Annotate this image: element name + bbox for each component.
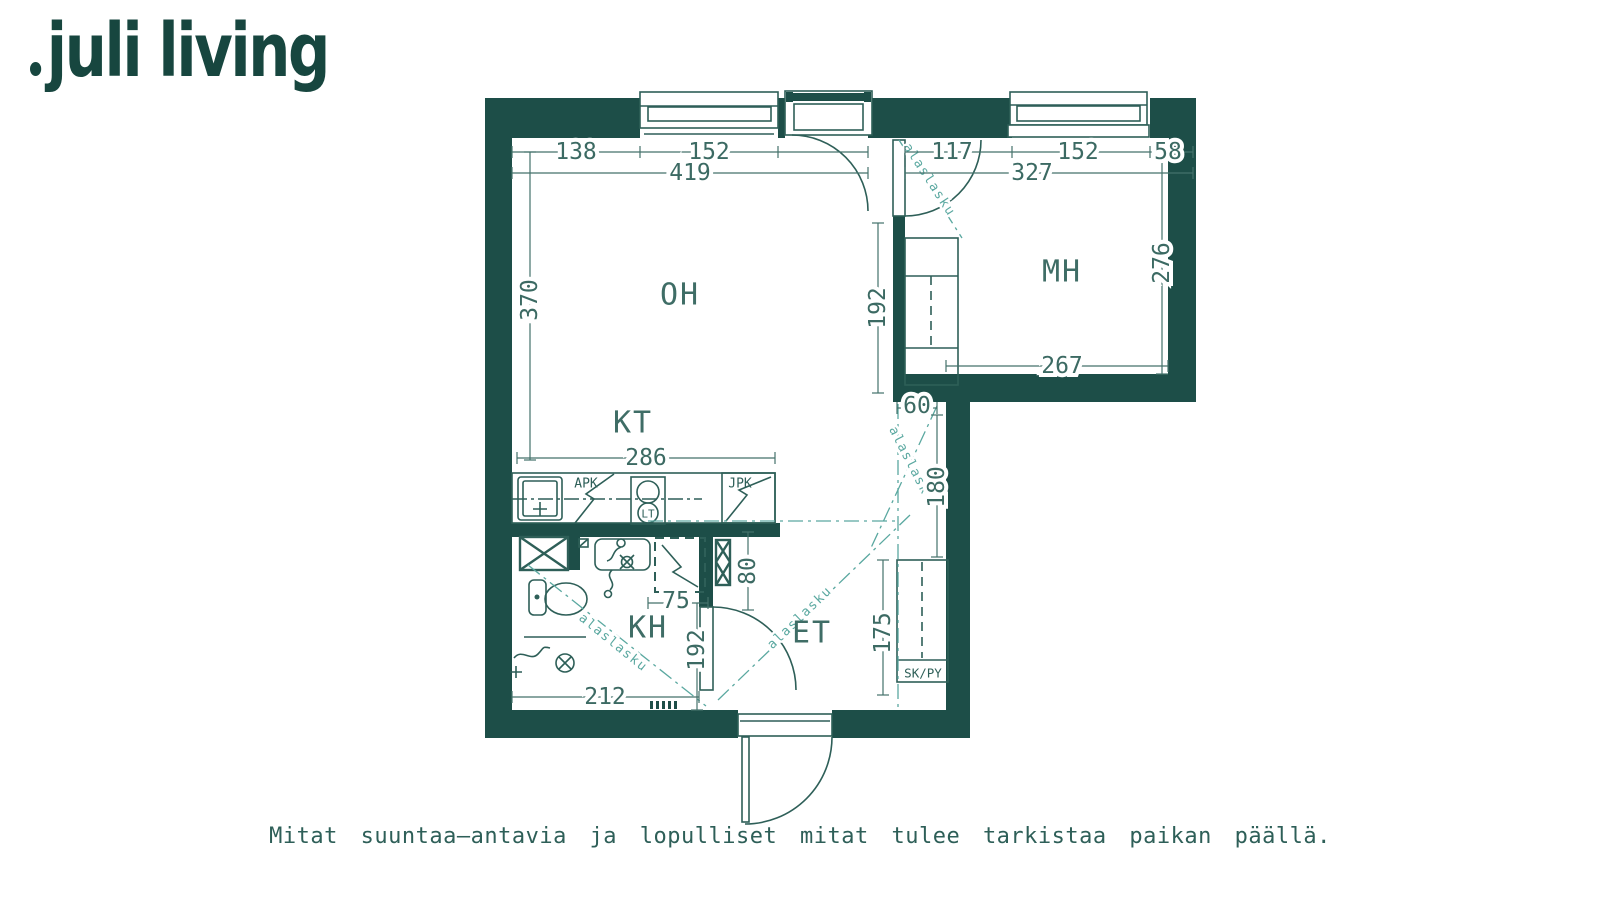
- dim-oh-opening: 192: [865, 287, 891, 329]
- dim-nook-w: 60: [903, 393, 931, 419]
- floor-plan-drawing: APK JPK LT: [0, 0, 1600, 900]
- walls: [485, 98, 1196, 738]
- dim-mh-bottom: 267: [1041, 353, 1083, 379]
- floor-plan-page: juli living: [0, 0, 1600, 900]
- dim-nook-h: 180: [924, 466, 950, 508]
- toilet-icon: [529, 580, 587, 615]
- dim-et-cab: 80: [735, 557, 761, 585]
- room-label-bedroom: MH: [1042, 255, 1082, 290]
- bedroom-wardrobe: [905, 238, 958, 385]
- hatch-square-icon: [579, 539, 588, 547]
- duct-shaft-icon: [520, 537, 568, 570]
- dim-oh-left: 370: [517, 279, 543, 321]
- dishwasher-label: APK: [574, 477, 598, 492]
- dim-et-h: 175: [870, 612, 896, 654]
- balcony-door: [785, 91, 872, 211]
- window-living-room: [640, 92, 778, 134]
- dim-mh-top-seg1: 117: [931, 139, 973, 165]
- disclaimer-text: Mitat suuntaa—antavia ja lopulliset mita…: [0, 824, 1600, 849]
- dim-oh-top-seg1: 138: [555, 139, 597, 165]
- dim-mh-top-total: 327: [1011, 160, 1053, 186]
- fridge-label: JPK: [728, 477, 752, 492]
- reserved-appliance-box: [655, 538, 705, 592]
- sink-bowl-icon: [637, 481, 659, 503]
- dim-mh-top-seg2: 152: [1057, 139, 1099, 165]
- room-label-entry: ET: [792, 616, 832, 651]
- entrance-door: [738, 714, 832, 824]
- lt-label: LT: [641, 508, 655, 521]
- dim-mh-top-seg3: 58: [1154, 139, 1182, 165]
- threshold-comb-icon: [650, 701, 677, 709]
- floor-drain-icon: [510, 647, 574, 678]
- room-label-kitchen: KT: [613, 406, 653, 441]
- kitchen-counter: APK JPK LT: [512, 473, 775, 524]
- window-bedroom: [1008, 92, 1149, 137]
- entry-cabinet-icon: [716, 540, 730, 585]
- plumbing-cross-icon: [533, 502, 547, 516]
- entry-closet: SK/PY: [897, 560, 948, 682]
- dim-oh-top-total: 419: [669, 160, 711, 186]
- dim-kh-w: 212: [584, 684, 626, 710]
- room-label-bathroom: KH: [628, 611, 668, 646]
- closet-label: SK/PY: [904, 666, 942, 681]
- washbasin-icon: [595, 539, 650, 598]
- dim-kt-run: 286: [625, 445, 667, 471]
- dim-kh-h: 192: [684, 629, 710, 671]
- dim-mh-right: 276: [1149, 242, 1175, 284]
- bathroom-door: [700, 607, 796, 690]
- room-label-living: OH: [660, 278, 700, 313]
